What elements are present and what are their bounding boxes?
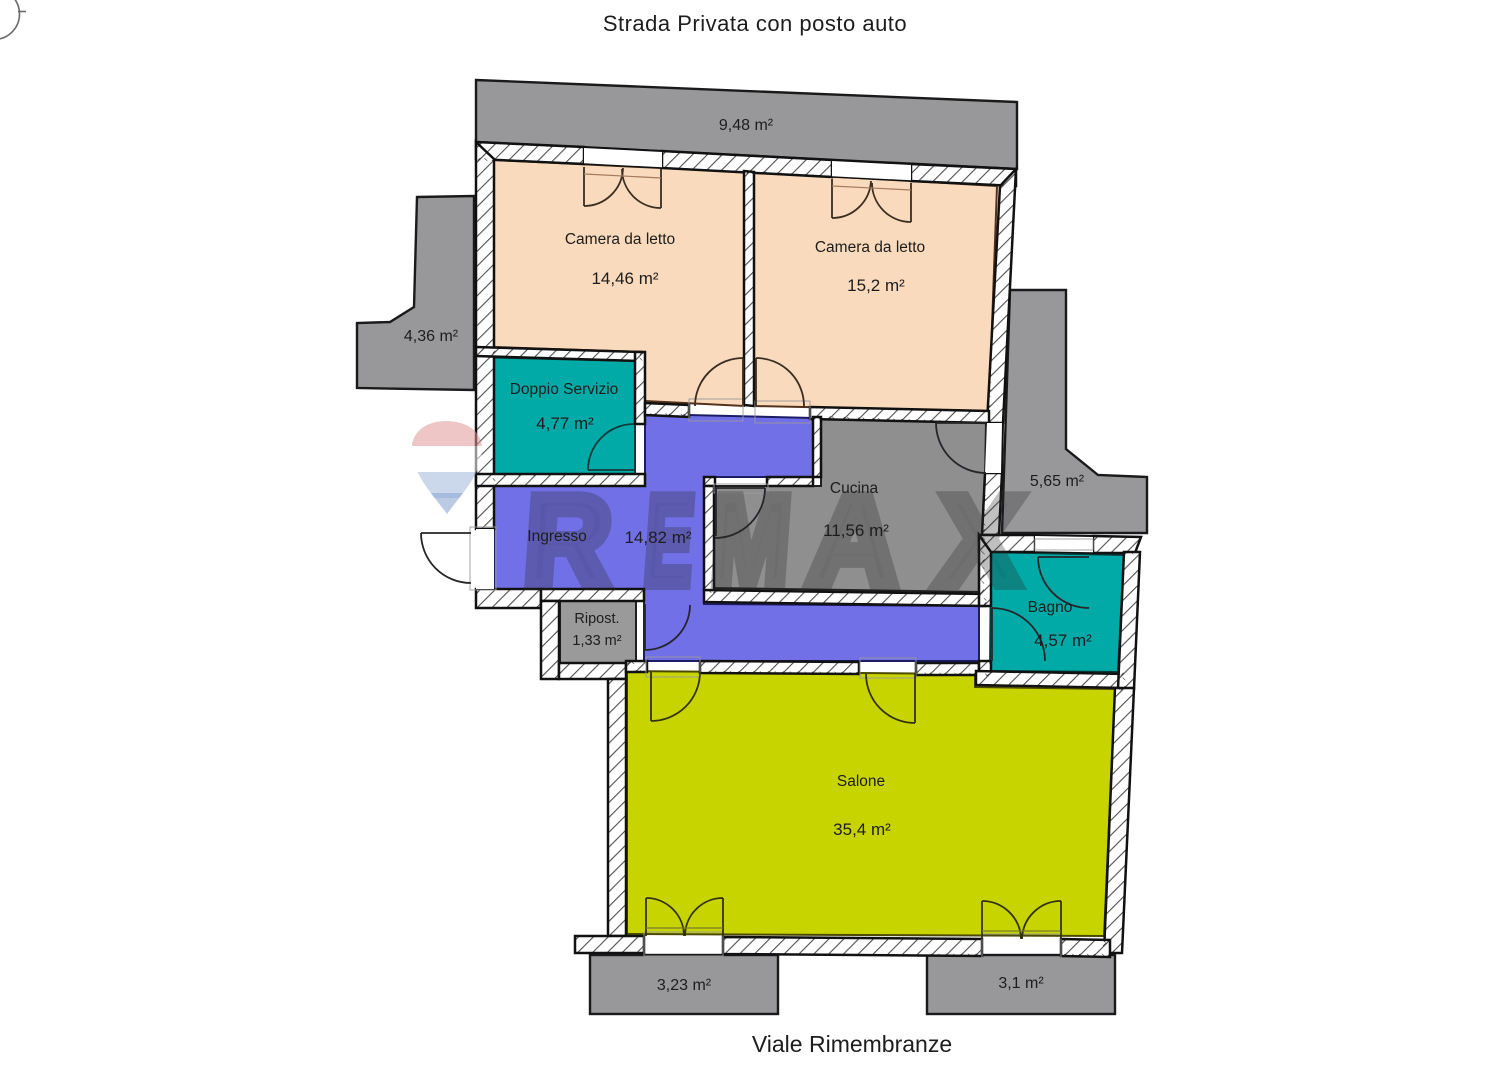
- svg-text:Ingresso: Ingresso: [527, 528, 586, 545]
- svg-text:15,2 m²: 15,2 m²: [847, 276, 905, 295]
- svg-text:Camera da letto: Camera da letto: [565, 231, 675, 248]
- svg-text:Doppio Servizio: Doppio Servizio: [510, 381, 619, 398]
- svg-text:M: M: [707, 470, 795, 611]
- svg-text:14,82 m²: 14,82 m²: [624, 528, 691, 547]
- svg-text:Camera da letto: Camera da letto: [815, 239, 925, 256]
- svg-text:14,46 m²: 14,46 m²: [591, 269, 658, 288]
- svg-text:11,56 m²: 11,56 m²: [823, 521, 889, 540]
- svg-text:3,23 m²: 3,23 m²: [657, 977, 712, 994]
- svg-text:X: X: [934, 470, 1026, 611]
- svg-text:35,4 m²: 35,4 m²: [833, 820, 891, 839]
- svg-text:Bagno: Bagno: [1028, 599, 1073, 616]
- svg-text:1,33 m²: 1,33 m²: [572, 633, 621, 649]
- svg-text:4,36 m²: 4,36 m²: [404, 328, 459, 345]
- svg-text:3,1 m²: 3,1 m²: [998, 975, 1044, 992]
- svg-text:5,65 m²: 5,65 m²: [1030, 473, 1085, 490]
- svg-text:9,48 m²: 9,48 m²: [719, 117, 774, 134]
- svg-text:Viale Rimembranze: Viale Rimembranze: [752, 1031, 952, 1057]
- svg-text:Strada Privata con posto auto: Strada Privata con posto auto: [603, 11, 907, 36]
- svg-text:Ripost.: Ripost.: [574, 611, 619, 627]
- svg-text:Cucina: Cucina: [830, 480, 879, 497]
- svg-text:4,57 m²: 4,57 m²: [1034, 631, 1092, 650]
- svg-text:4,77 m²: 4,77 m²: [536, 414, 594, 433]
- svg-text:Salone: Salone: [837, 773, 885, 790]
